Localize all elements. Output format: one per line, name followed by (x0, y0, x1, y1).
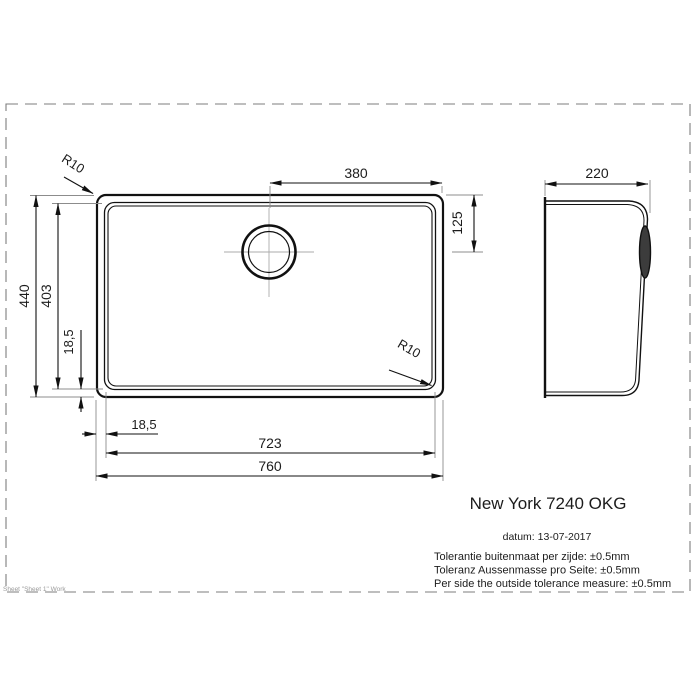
extension-lines (30, 180, 650, 481)
dim-380-label: 380 (344, 165, 368, 181)
dim-220-label: 220 (585, 165, 609, 181)
dimension-403: 403 (38, 204, 58, 390)
side-view-body-inner (545, 205, 644, 393)
drawing-sheet: 380 125 220 440 403 18,5 18,5 723 760 R1… (0, 0, 700, 700)
tolerance-line-en: Per side the outside tolerance measure: … (434, 578, 671, 590)
radius-callout-top-left: R10 (59, 151, 93, 194)
sink-bowl-inner-edge (108, 206, 432, 386)
dim-125-label: 125 (449, 211, 465, 235)
side-view-sink (545, 197, 651, 398)
dimension-220: 220 (545, 165, 648, 184)
side-view-body-outer (545, 201, 648, 396)
dimension-723: 723 (106, 435, 435, 453)
dim-18-5-horizontal-label: 18,5 (131, 417, 156, 432)
dim-403-label: 403 (38, 284, 54, 308)
date-line: datum: 13-07-2017 (503, 531, 592, 543)
sheet-footer-label: Sheet "Sheet 1" Work (3, 586, 66, 593)
dimension-125: 125 (449, 195, 474, 252)
dimension-440: 440 (16, 196, 36, 398)
sink-bowl-rim (105, 203, 436, 390)
dimension-760: 760 (96, 458, 443, 476)
title-block: New York 7240 OKG datum: 13-07-2017 Tole… (434, 494, 671, 590)
technical-drawing: 380 125 220 440 403 18,5 18,5 723 760 R1… (0, 0, 700, 700)
dimension-18-5-vertical: 18,5 (61, 329, 81, 412)
radius-callout-bottom-right: R10 (389, 336, 432, 385)
dim-18-5-vertical-label: 18,5 (61, 329, 76, 354)
dim-723-label: 723 (258, 435, 282, 451)
dim-760-label: 760 (258, 458, 282, 474)
dim-440-label: 440 (16, 284, 32, 308)
dimension-380: 380 (270, 165, 442, 183)
radius-top-left-label: R10 (59, 151, 87, 177)
side-view-drain-boss (640, 226, 651, 278)
tolerance-line-de: Toleranz Aussenmasse pro Seite: ±0.5mm (434, 565, 640, 577)
tolerance-line-nl: Tolerantie buitenmaat per zijde: ±0.5mm (434, 551, 630, 563)
radius-bottom-right-label: R10 (395, 336, 423, 361)
product-title: New York 7240 OKG (470, 494, 627, 513)
top-view-sink (97, 195, 443, 397)
dimension-18-5-horizontal: 18,5 (82, 417, 158, 434)
